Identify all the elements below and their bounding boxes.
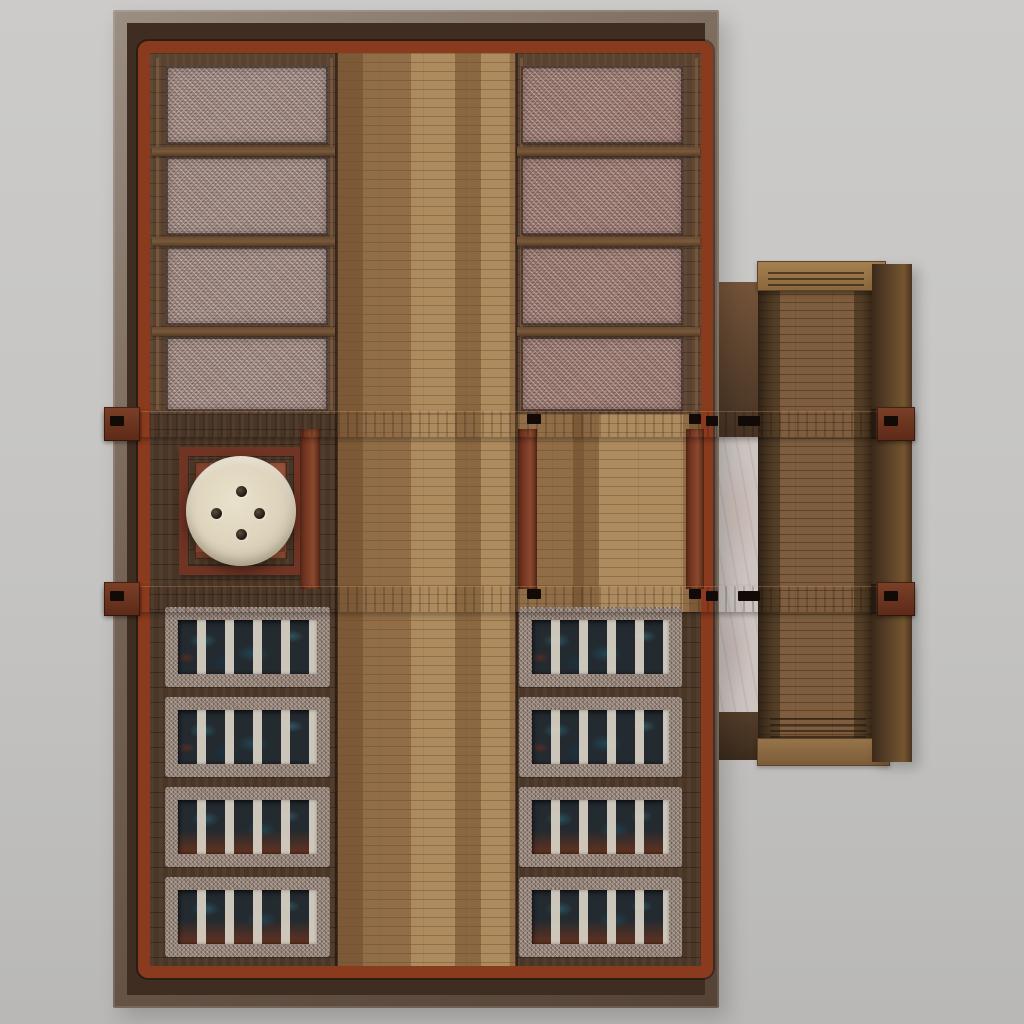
beam-notch (689, 589, 701, 599)
beam-notch (706, 591, 718, 601)
beam-notch (110, 416, 124, 426)
beam-notch (110, 591, 124, 601)
cross-beam-top (104, 411, 915, 437)
beam-joint (871, 409, 876, 439)
beam-notch (527, 414, 541, 424)
render-stage (0, 0, 1024, 1024)
beam-notch (527, 589, 541, 599)
beam-joint (871, 584, 876, 614)
cross-beams (0, 0, 1024, 1024)
beam-notch (738, 416, 760, 426)
beam-notch (706, 416, 718, 426)
cross-beam-bottom (104, 586, 915, 612)
beam-notch (884, 416, 898, 426)
beam-notch (738, 591, 760, 601)
beam-notch (884, 591, 898, 601)
beam-notch (689, 414, 701, 424)
